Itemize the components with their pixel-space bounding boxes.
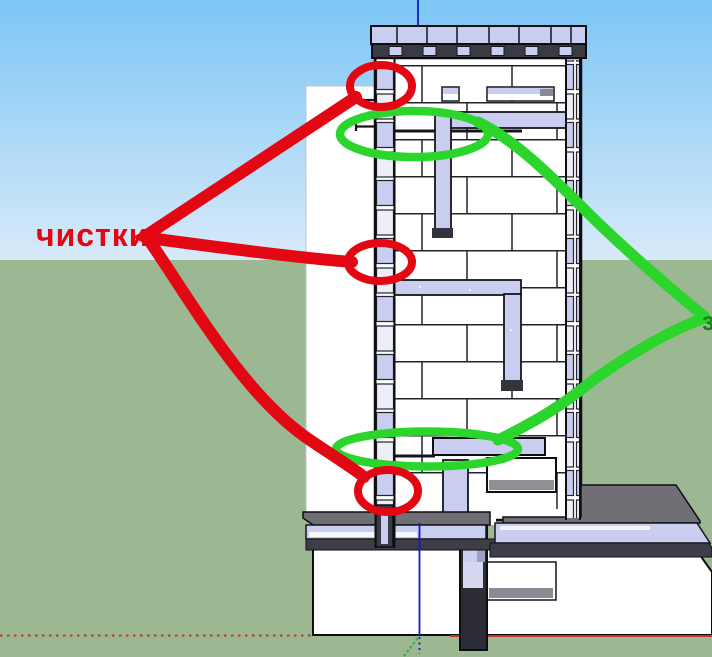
stove-cap (371, 26, 586, 58)
right-partial-label: з (702, 306, 712, 336)
foundation (313, 548, 712, 635)
top-slots (442, 87, 554, 101)
cleanouts-label: чистки (36, 217, 149, 253)
stove-scene: з чистки (0, 0, 712, 657)
right-wall-column (566, 58, 580, 520)
sketchup-viewport: з чистки (0, 0, 712, 657)
